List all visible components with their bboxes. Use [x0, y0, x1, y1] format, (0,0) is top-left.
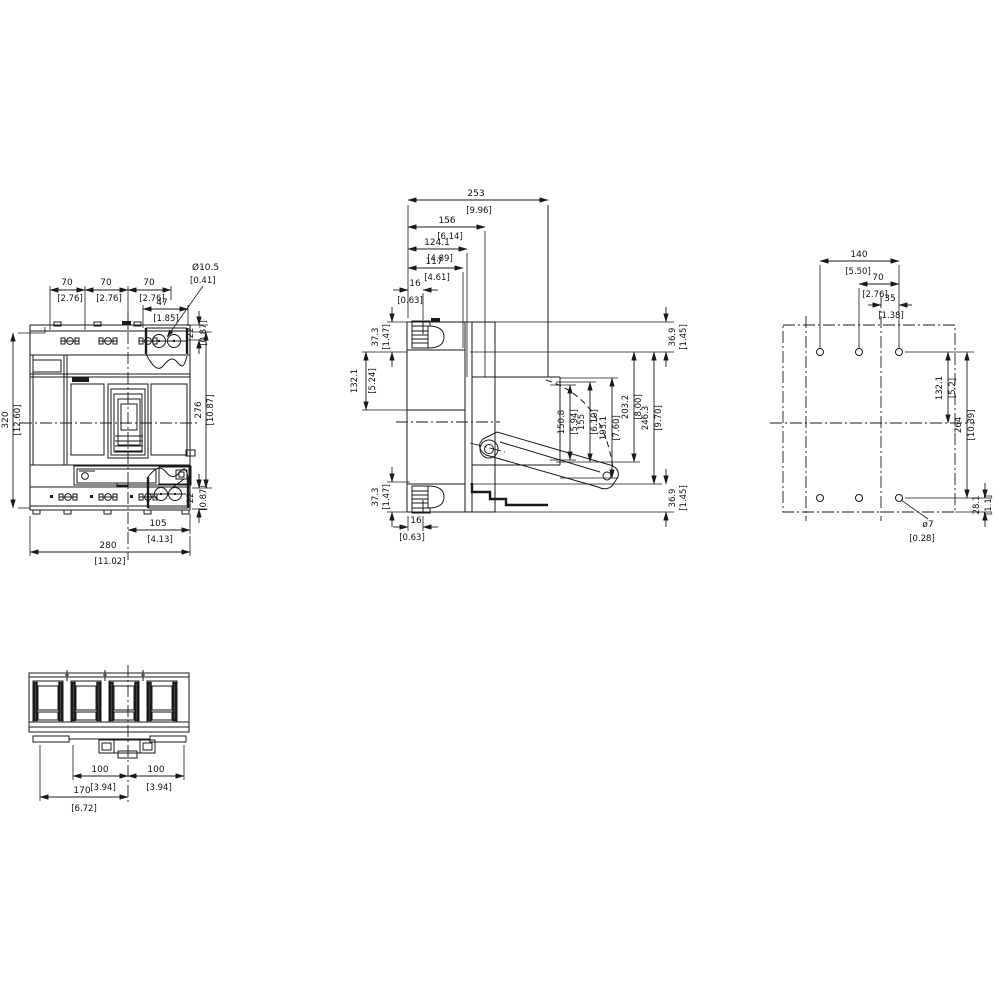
- terminal-module: [71, 681, 101, 722]
- svg-text:70: 70: [872, 273, 884, 283]
- svg-text:[12.60]: [12.60]: [13, 405, 23, 436]
- svg-text:37.3: 37.3: [371, 488, 381, 507]
- svg-text:[1.45]: [1.45]: [679, 324, 689, 350]
- svg-text:105: 105: [149, 519, 166, 529]
- svg-text:156: 156: [438, 216, 455, 226]
- svg-text:[10.87]: [10.87]: [206, 395, 216, 426]
- side-body-outline: [407, 322, 470, 512]
- svg-text:[0.63]: [0.63]: [399, 533, 425, 543]
- label-hole-diameter: Ø10.5 [0.41]: [167, 262, 219, 337]
- rear-right-extension-lines: [905, 352, 992, 512]
- svg-text:[1.38]: [1.38]: [878, 311, 904, 321]
- front-terminal-detail-top: [146, 328, 187, 368]
- svg-text:22: 22: [186, 328, 196, 339]
- dim-28-1: 28.1 [1.1]: [972, 483, 994, 527]
- svg-text:[9.70]: [9.70]: [654, 405, 664, 431]
- front-terminal-detail-bottom: [148, 468, 188, 508]
- svg-text:16: 16: [409, 279, 421, 289]
- svg-text:22: 22: [186, 493, 196, 504]
- svg-text:[5.24]: [5.24]: [368, 368, 378, 394]
- svg-text:28.1: 28.1: [972, 496, 982, 515]
- svg-text:[4.13]: [4.13]: [147, 535, 173, 545]
- svg-text:[4.61]: [4.61]: [424, 273, 450, 283]
- break-line: [146, 354, 187, 368]
- svg-text:[0.87]: [0.87]: [199, 485, 209, 511]
- svg-text:[0.28]: [0.28]: [909, 534, 935, 544]
- svg-text:320: 320: [1, 411, 11, 428]
- rear-drilling-view: 140 [5.50] 70 [2.76] 35 [1.38] 132.1 [5.…: [770, 250, 994, 544]
- front-body-outline: [30, 325, 190, 510]
- dim-170: 170 [6.72]: [40, 745, 128, 814]
- bottom-view: 100 [3.94] 100 [3.94] 170 [6.72]: [29, 665, 189, 814]
- svg-text:[3.94]: [3.94]: [146, 783, 172, 793]
- svg-text:[3.94]: [3.94]: [90, 783, 116, 793]
- svg-text:70: 70: [143, 278, 155, 288]
- terminal-module: [33, 681, 63, 722]
- svg-text:[10.39]: [10.39]: [967, 410, 977, 441]
- dimension-drawing-page: 70 [2.76] 70 [2.76] 70 [2.76] 47 [1.85] …: [0, 0, 1000, 1000]
- dim-37-3-top: 37.3 [1.47]: [371, 307, 410, 367]
- svg-text:100: 100: [147, 765, 164, 775]
- mounting-plate-outline: [783, 325, 955, 512]
- svg-text:[11.02]: [11.02]: [95, 557, 126, 567]
- front-face-details: [33, 355, 195, 465]
- svg-text:124.1: 124.1: [424, 238, 450, 248]
- dim-155: 155 [6.10]: [577, 382, 600, 462]
- svg-text:[6.72]: [6.72]: [71, 804, 97, 814]
- svg-text:[1.47]: [1.47]: [382, 324, 392, 350]
- svg-text:246.3: 246.3: [641, 406, 651, 430]
- terminal-screw-icon: [99, 338, 117, 345]
- terminal-screw-icon: [61, 338, 79, 345]
- front-accessory-band: [74, 466, 191, 486]
- dim-36-9-top: 36.9 [1.45]: [666, 307, 689, 367]
- svg-text:[1.1]: [1.1]: [984, 495, 994, 515]
- svg-text:[0.41]: [0.41]: [190, 276, 216, 286]
- dim-16-bottom: 16 [0.63]: [393, 516, 438, 543]
- dim-36-9-bottom: 36.9 [1.45]: [666, 469, 689, 527]
- svg-text:150.8: 150.8: [557, 410, 567, 434]
- svg-text:193.1: 193.1: [599, 416, 609, 440]
- front-bottom-terminals: [33, 494, 189, 514]
- svg-text:[0.63]: [0.63]: [397, 296, 423, 306]
- dim-pole-pitch-b: 70 [2.76]: [85, 278, 128, 330]
- dim-276: 276 [10.87]: [192, 332, 216, 488]
- terminal-screw-icon: [59, 494, 77, 501]
- svg-text:[0.87]: [0.87]: [199, 320, 209, 346]
- dim-100-right: 100 [3.94]: [128, 745, 184, 793]
- svg-text:253: 253: [467, 189, 484, 199]
- svg-text:[9.96]: [9.96]: [466, 206, 492, 216]
- front-view: 70 [2.76] 70 [2.76] 70 [2.76] 47 [1.85] …: [1, 262, 219, 567]
- svg-text:155: 155: [577, 414, 587, 430]
- svg-text:[1.47]: [1.47]: [382, 484, 392, 510]
- side-view: 253 [9.96] 156 [6.14] 124.1 [4.89] 117 […: [350, 189, 689, 543]
- svg-text:280: 280: [99, 541, 116, 551]
- svg-text:Ø10.5: Ø10.5: [192, 262, 219, 273]
- dim-37-3-bottom: 37.3 [1.47]: [371, 467, 410, 527]
- svg-text:70: 70: [61, 278, 73, 288]
- svg-text:70: 70: [100, 278, 112, 288]
- dim-246-3: 246.3 [9.70]: [641, 352, 664, 484]
- svg-text:[2.76]: [2.76]: [57, 294, 83, 304]
- side-bottom-terminal-clamp: [412, 486, 444, 513]
- svg-text:37.3: 37.3: [371, 328, 381, 347]
- svg-text:170: 170: [73, 786, 90, 796]
- svg-text:47: 47: [156, 298, 167, 308]
- dim-132-1-left: 132.1 [5.24]: [350, 352, 407, 410]
- bottom-terminal-modules: [33, 670, 177, 722]
- terminal-screw-icon: [99, 494, 117, 501]
- label-rear-hole-diameter: ø7 [0.28]: [901, 500, 935, 544]
- svg-text:35: 35: [884, 294, 895, 304]
- phase-barrier-pins: [65, 670, 145, 681]
- rating-label: [72, 377, 89, 382]
- svg-text:264: 264: [954, 417, 964, 433]
- svg-text:16: 16: [410, 516, 422, 526]
- svg-text:[1.45]: [1.45]: [679, 485, 689, 511]
- svg-text:[1.85]: [1.85]: [153, 314, 179, 324]
- side-rear-frame: [465, 205, 560, 512]
- dim-105: 105 [4.13]: [128, 514, 190, 545]
- bottom-mounting-bracket: [33, 736, 186, 758]
- svg-text:203.2: 203.2: [621, 395, 631, 419]
- dim-320: 320 [12.60]: [1, 327, 45, 508]
- mounting-step: [472, 483, 548, 505]
- terminal-module: [147, 681, 177, 722]
- dim-16-top: 16 [0.63]: [393, 279, 438, 320]
- svg-text:140: 140: [850, 250, 867, 260]
- svg-text:132.1: 132.1: [935, 376, 945, 400]
- terminal-module: [109, 681, 139, 722]
- svg-text:[2.76]: [2.76]: [96, 294, 122, 304]
- svg-text:36.9: 36.9: [668, 489, 678, 508]
- rear-fixing-holes: [817, 349, 903, 502]
- svg-text:276: 276: [194, 401, 204, 418]
- drawing-canvas: 70 [2.76] 70 [2.76] 70 [2.76] 47 [1.85] …: [0, 0, 1000, 1000]
- svg-text:[5.50]: [5.50]: [845, 267, 871, 277]
- svg-text:132.1: 132.1: [350, 369, 360, 393]
- svg-text:117: 117: [425, 257, 442, 267]
- svg-text:[5.2]: [5.2]: [948, 378, 958, 398]
- svg-text:36.9: 36.9: [668, 328, 678, 347]
- svg-text:ø7: ø7: [922, 520, 933, 530]
- dim-264: 264 [10.39]: [954, 352, 977, 498]
- svg-text:100: 100: [91, 765, 108, 775]
